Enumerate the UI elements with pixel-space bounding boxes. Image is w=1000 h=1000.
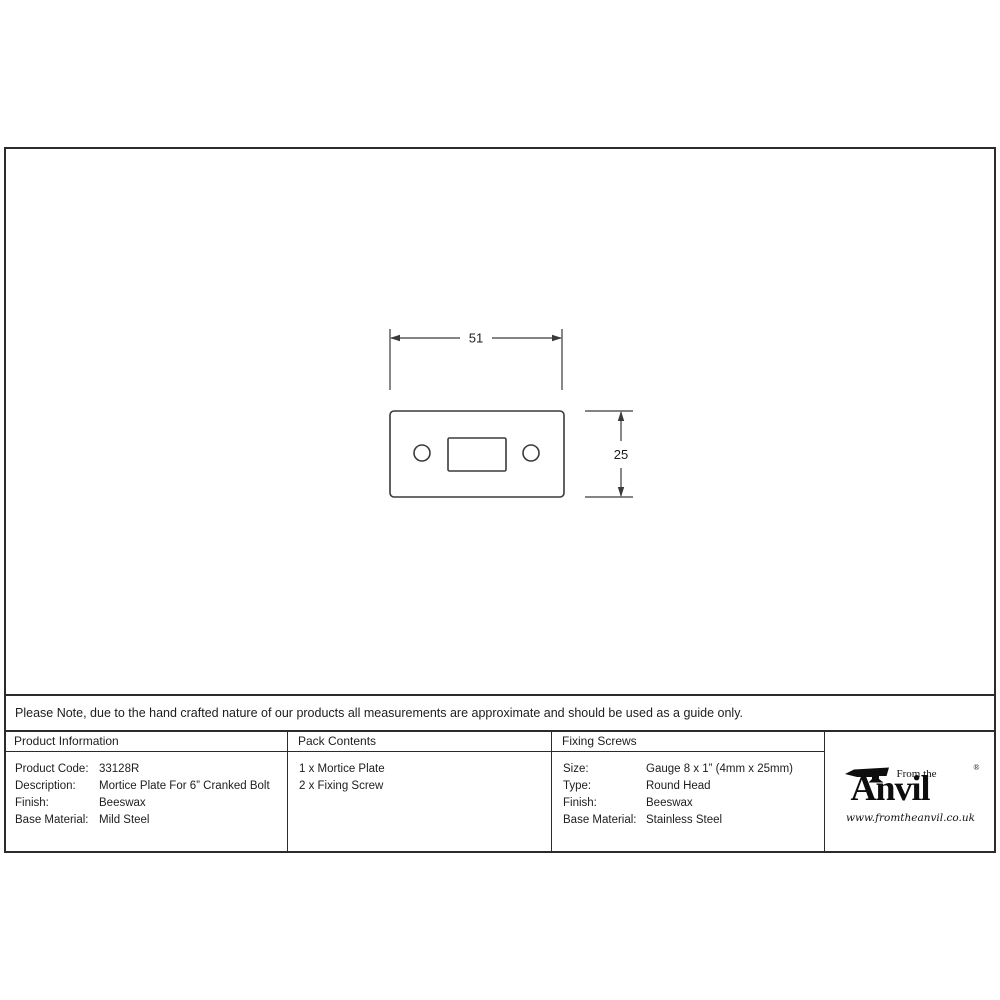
from-the-anvil-logo: From the ® Anvil www.fromtheanvil.co.uk <box>844 764 978 822</box>
left-screw-hole <box>414 445 430 461</box>
row-value: Mild Steel <box>99 812 283 829</box>
table-row: Size: Gauge 8 x 1” (4mm x 25mm) <box>563 761 820 778</box>
product-information-body: Product Code: 33128R Description: Mortic… <box>4 752 287 829</box>
row-label: Base Material: <box>15 812 99 829</box>
product-information-header: Product Information <box>4 732 287 752</box>
row-label: Finish: <box>15 795 99 812</box>
width-dimension: 51 <box>390 329 562 390</box>
row-label: Description: <box>15 778 99 795</box>
row-value: Round Head <box>646 778 820 795</box>
product-information-column: Product Information Product Code: 33128R… <box>4 732 287 853</box>
table-row: Description: Mortice Plate For 6” Cranke… <box>15 778 283 795</box>
row-value: Beeswax <box>99 795 283 812</box>
table-row: Finish: Beeswax <box>563 795 820 812</box>
technical-drawing: 51 25 <box>360 310 660 510</box>
row-label: Finish: <box>563 795 646 812</box>
height-dimension: 25 <box>585 411 633 497</box>
right-screw-hole <box>523 445 539 461</box>
row-label: Base Material: <box>563 812 646 829</box>
row-value: Gauge 8 x 1” (4mm x 25mm) <box>646 761 820 778</box>
width-dimension-label: 51 <box>469 331 483 346</box>
row-label: Type: <box>563 778 646 795</box>
row-value: Mortice Plate For 6” Cranked Bolt <box>99 778 283 795</box>
row-value: 33128R <box>99 761 283 778</box>
table-row: Type: Round Head <box>563 778 820 795</box>
pack-contents-body: 1 x Mortice Plate 2 x Fixing Screw <box>288 752 551 795</box>
fixing-screws-column: Fixing Screws Size: Gauge 8 x 1” (4mm x … <box>551 732 824 853</box>
list-item: 2 x Fixing Screw <box>299 778 547 795</box>
mortice-plate-outline <box>390 411 564 497</box>
height-dimension-label: 25 <box>614 447 628 462</box>
table-row: Base Material: Mild Steel <box>15 812 283 829</box>
bolt-slot <box>448 438 506 471</box>
fixing-screws-header: Fixing Screws <box>552 732 824 752</box>
pack-contents-header: Pack Contents <box>288 732 551 752</box>
logo-wordmark: Anvil <box>851 769 930 807</box>
note-bar: Please Note, due to the hand crafted nat… <box>4 694 996 730</box>
row-label: Product Code: <box>15 761 99 778</box>
table-row: Finish: Beeswax <box>15 795 283 812</box>
table-row: Base Material: Stainless Steel <box>563 812 820 829</box>
list-item: 1 x Mortice Plate <box>299 761 547 778</box>
table-row: Product Code: 33128R <box>15 761 283 778</box>
info-table: Product Information Product Code: 33128R… <box>4 730 996 853</box>
fixing-screws-body: Size: Gauge 8 x 1” (4mm x 25mm) Type: Ro… <box>552 752 824 829</box>
logo-website-url: www.fromtheanvil.co.uk <box>844 812 978 824</box>
disclaimer-text: Please Note, due to the hand crafted nat… <box>15 706 743 720</box>
brand-logo-cell: From the ® Anvil www.fromtheanvil.co.uk <box>824 732 996 853</box>
pack-contents-column: Pack Contents 1 x Mortice Plate 2 x Fixi… <box>287 732 551 853</box>
row-value: Beeswax <box>646 795 820 812</box>
row-label: Size: <box>563 761 646 778</box>
product-spec-sheet: 51 25 Please Note, due to the hand craft… <box>0 0 1000 1000</box>
registered-mark: ® <box>973 763 979 772</box>
row-value: Stainless Steel <box>646 812 820 829</box>
